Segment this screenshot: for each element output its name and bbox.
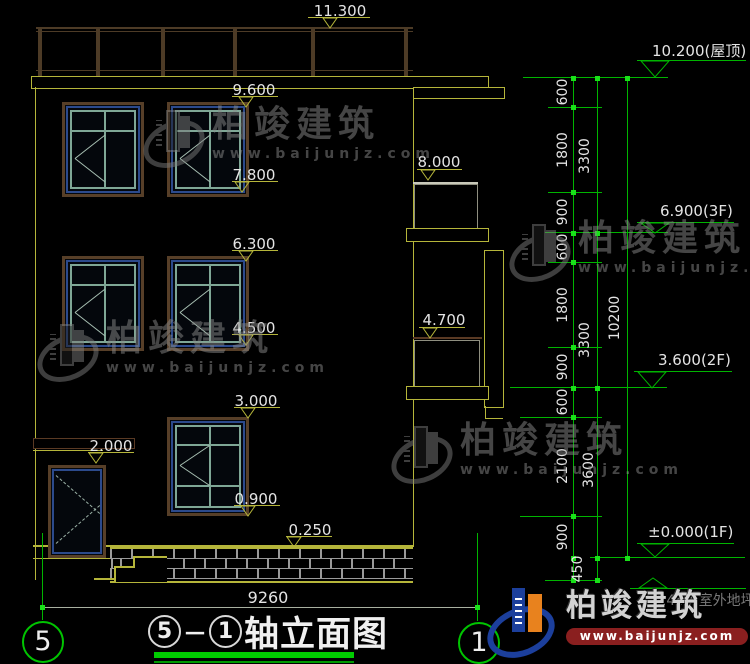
watermark-logo-icon (390, 422, 452, 486)
elevation-triangle-icon (238, 335, 254, 346)
title-bubble-1: 1 (209, 615, 242, 648)
elevation-triangle-icon (420, 170, 436, 181)
elevation-triangle-icon (240, 506, 256, 517)
window-3f-left (62, 102, 144, 197)
brand-logo-icon (486, 580, 560, 658)
elevation-triangle-icon (240, 408, 256, 419)
level-triangle-icon (640, 223, 670, 234)
grid-bubble-5: 5 (22, 621, 64, 663)
elevation-triangle-icon (88, 453, 104, 464)
drawing-title: 5 － 1 轴立面图 (148, 606, 388, 657)
elevation-drawing: 11.300 9.600 7.800 8.000 6.300 4.500 4.7… (0, 0, 750, 664)
entry-step-2 (114, 566, 135, 582)
title-dash: － (183, 614, 207, 649)
watermark: 柏竣建筑www.baijunjz.com (508, 220, 750, 284)
roof-ledge-right (413, 87, 505, 99)
balcony-2f (414, 340, 480, 388)
elevation-triangle-icon (238, 251, 254, 262)
title-text: 轴立面图 (244, 606, 388, 657)
bay-outer (484, 250, 504, 408)
balcony-3f (414, 184, 478, 230)
elevation-triangle-icon (238, 97, 254, 108)
entry-door (48, 465, 106, 558)
level-triangle-icon (637, 372, 667, 389)
elevation-triangle-icon (422, 328, 438, 339)
level-triangle-icon (640, 61, 670, 78)
brand-name: 柏竣建筑 (566, 580, 748, 625)
right-wall (413, 97, 414, 546)
level-triangle-icon (640, 544, 670, 558)
elevation-triangle-icon (322, 18, 338, 29)
left-wall (35, 87, 36, 580)
width-dim-value: 9260 (238, 588, 298, 607)
brand-site: www.baijunjz.com (566, 628, 748, 645)
entry-step-1 (133, 556, 167, 582)
title-bubble-5: 5 (148, 615, 181, 648)
brand-logo: 柏竣建筑 www.baijunjz.com (486, 580, 748, 658)
title-underline-1 (154, 652, 354, 658)
balcony-3f-slab (406, 228, 489, 242)
elevation-triangle-icon (234, 182, 250, 193)
porch-floor-line (33, 558, 110, 559)
title-underline-2 (154, 661, 354, 663)
elevation-triangle-icon (286, 537, 302, 548)
entry-step-3 (94, 578, 114, 580)
balcony-2f-slab (406, 386, 489, 400)
window-2f-left (62, 256, 144, 351)
watermark: 柏竣建筑www.baijunjz.com (390, 422, 683, 486)
